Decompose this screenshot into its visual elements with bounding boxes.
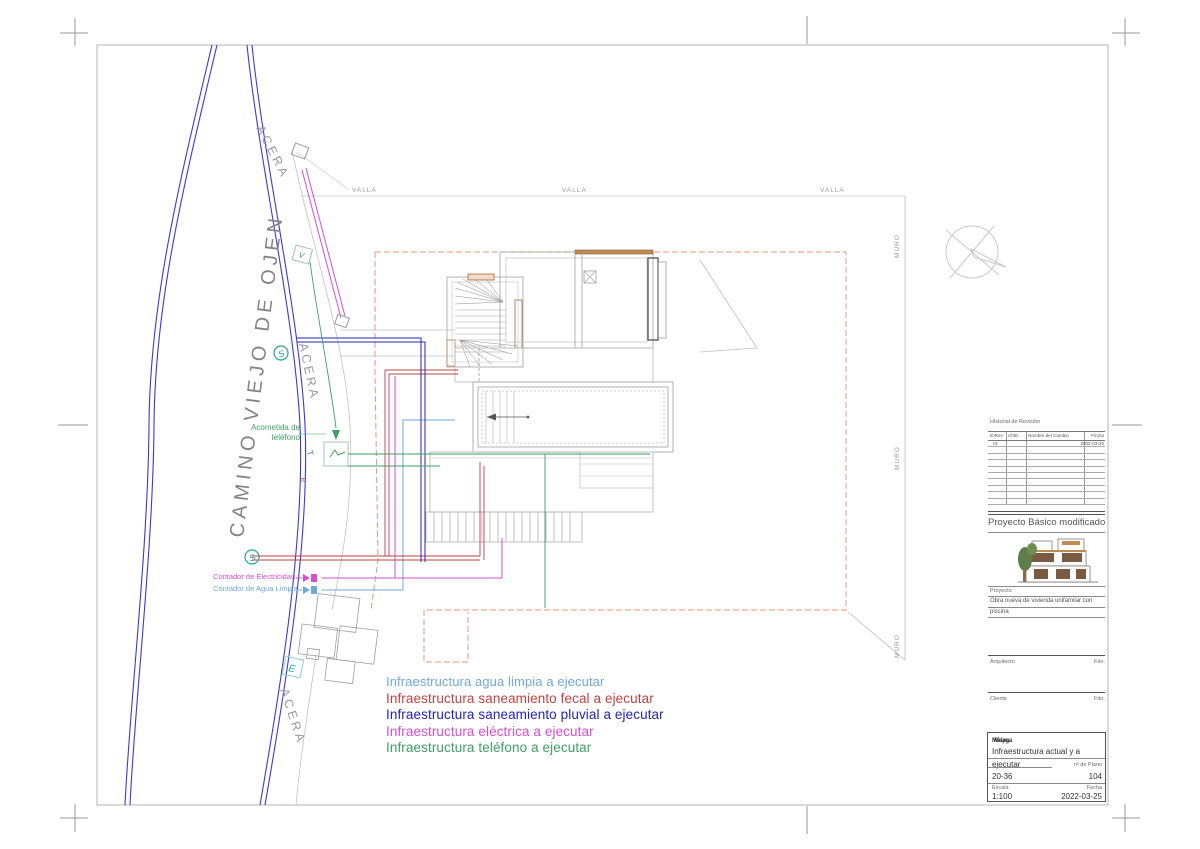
fence-label-2: VALLA	[562, 187, 587, 194]
revision-table: IDRev ChID Nombre del Cambio Fecha 01 20…	[988, 431, 1105, 505]
manhole-s-label: S	[277, 348, 286, 359]
escala-value: 1:100	[992, 792, 1012, 801]
staircase	[447, 274, 523, 367]
plot-boundary-dashed	[371, 252, 846, 662]
plano-num-label: nº de Plano	[1074, 762, 1102, 768]
fence-label-3: VALLA	[820, 187, 845, 194]
building-outline	[298, 250, 757, 684]
pergola-posts	[426, 512, 582, 542]
revision-history-title: Historial de Revisión	[990, 419, 1040, 425]
upper-room	[500, 250, 666, 348]
lower-terrace	[430, 452, 653, 512]
sidewalk-label-top: ACERA	[253, 123, 292, 181]
infrastructure-legend: Infraestructura agua limpia a ejecutar I…	[386, 674, 686, 757]
acometida-telefono-label: Acometida de teléfono	[228, 423, 300, 442]
wall-muro-line	[848, 196, 905, 660]
contador-electricidad-label: Contador de Electricidad	[213, 573, 295, 582]
plano-number: 104	[1089, 772, 1102, 781]
title-block: Historial de Revisión IDRev ChID Nombre …	[988, 416, 1105, 806]
escala-label: Escala	[992, 785, 1009, 791]
cliente-fdo-label: Fdo.	[1094, 696, 1105, 702]
drawing-sheet: S S V T e E CAMINO VIEJO DE OJEN ACERA A…	[0, 0, 1200, 849]
wall-label-1: MURO	[894, 234, 901, 258]
contador-agua-label: Contador de Agua Limpia	[213, 585, 295, 594]
utility-electrica	[296, 168, 502, 582]
svg-text:V: V	[298, 250, 306, 260]
proyecto-name-line2: piscina	[990, 609, 1009, 615]
pool	[473, 382, 673, 452]
wall-label-2: MURO	[894, 446, 901, 470]
manhole-s-label: S	[248, 552, 257, 563]
legend-item-pluvial: Infraestructura saneamiento pluvial a ej…	[386, 707, 686, 724]
north-compass-icon	[946, 226, 1006, 278]
legend-item-telefono: Infraestructura teléfono a ejecutar	[386, 740, 686, 757]
legend-item-agua: Infraestructura agua limpia a ejecutar	[386, 674, 686, 691]
mid-terrace	[455, 348, 653, 382]
revision-table-header: IDRev ChID Nombre del Cambio Fecha	[988, 432, 1105, 441]
utility-marker-v: V	[292, 245, 312, 264]
sidewalk-label-bottom: ACERA	[277, 687, 308, 747]
cliente-label: Cliente	[990, 696, 1007, 702]
fecha-label: Fecha	[1087, 785, 1102, 791]
utility-marker-e: E	[282, 656, 303, 677]
existing-structures	[298, 594, 378, 684]
sidewalk-label-mid: ACERA	[296, 342, 322, 402]
project-number: 20-36	[992, 772, 1012, 781]
fecha-value: 2022-03-25	[1061, 792, 1102, 801]
proyecto-name-line1: Obra nueva de vivienda unifamilar con	[990, 598, 1092, 604]
utility-fecal	[252, 370, 484, 560]
street-name-label: CAMINO VIEJO DE OJEN	[226, 213, 288, 539]
wall-label-3: MURO	[894, 634, 901, 658]
project-phase: Proyecto Básico modificado	[988, 517, 1105, 528]
terrain-lines	[700, 260, 757, 352]
arquitecto-label: Arquitecto	[990, 659, 1015, 665]
house-elevation-image	[1018, 537, 1098, 585]
sheet-title-line1: Infraestructura actual y a	[992, 747, 1080, 756]
fence-label-1: VALLA	[352, 187, 377, 194]
legend-item-fecal: Infraestructura saneamiento fecal a ejec…	[386, 691, 686, 708]
utility-agua-limpia	[296, 420, 455, 594]
sheet-info-box: Málaga Mapa: Infraestructura actual y a …	[987, 732, 1106, 802]
proyecto-label: Proyecto	[990, 588, 1012, 594]
svg-text:E: E	[287, 663, 296, 675]
legend-item-electrica: Infraestructura eléctrica a ejecutar	[386, 724, 686, 741]
entry-walkway	[340, 330, 455, 356]
arquitecto-fdo-label: Fdo.	[1094, 659, 1105, 665]
